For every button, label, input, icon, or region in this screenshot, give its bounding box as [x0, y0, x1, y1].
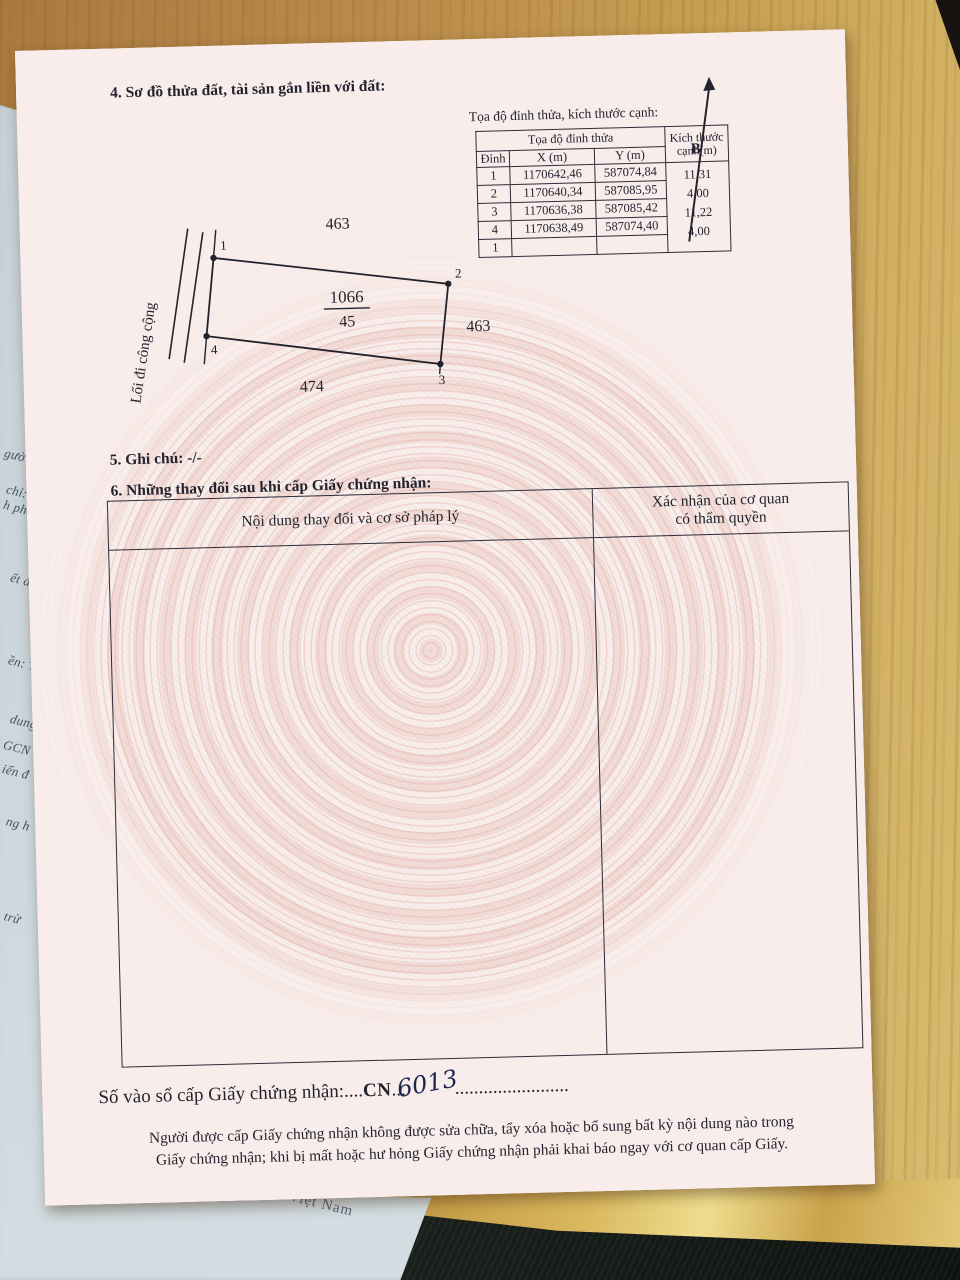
coord-col-dinh: Đỉnh	[476, 151, 509, 168]
leader-dots: ........................	[454, 1075, 569, 1099]
section5-heading: 5. Ghi chú: -/-	[110, 449, 203, 469]
confirm-col-header-line2: có thẩm quyền	[652, 508, 790, 529]
parcel-diagram: 1 2 3 4 463 463 474 1066 45 Lối đi công …	[97, 186, 535, 429]
edge-length: 11,22	[667, 205, 729, 220]
coord-col-y: Y (m)	[594, 147, 665, 165]
neighbor-parcel-right: 463	[466, 318, 490, 336]
edge-length: 4,00	[668, 224, 730, 239]
confirm-col-header: Xác nhận của cơ quan có thẩm quyền	[593, 482, 849, 538]
public-path-label: Lối đi công cộng	[128, 301, 159, 405]
neighbor-parcel-top: 463	[325, 215, 349, 233]
coord-header-kt: Kích thước cạnh(m)	[665, 125, 729, 163]
cell-y: 587085,95	[595, 181, 666, 201]
vertex-label-4: 4	[211, 342, 218, 357]
cell-y: 587074,84	[595, 163, 666, 183]
changes-table-left-column: Nội dung thay đổi và cơ sở pháp lý	[108, 489, 608, 1067]
vertex-label-3: 3	[439, 372, 446, 387]
table-edge-shadow-top-right	[925, 0, 960, 70]
edge-length: 11,31	[666, 167, 728, 182]
serial-code: CN	[363, 1080, 392, 1102]
parcel-number: 1066	[329, 287, 363, 307]
leader-dots: ....	[344, 1080, 364, 1101]
cell-y: 587085,42	[596, 199, 667, 219]
coord-table-caption: Tọa độ đỉnh thửa, kích thước cạnh:	[469, 104, 659, 125]
serial-number-line: Số vào sổ cấp Giấy chứng nhận:....CN...6…	[98, 1069, 569, 1109]
cell-y: 587074,40	[596, 217, 667, 237]
edge-length: 4,00	[667, 186, 729, 201]
serial-label: Số vào sổ cấp Giấy chứng nhận:	[98, 1081, 344, 1108]
section4-heading: 4. Sơ đồ thửa đất, tài sản gắn liền với …	[110, 77, 386, 102]
confirm-col-header-line1: Xác nhận của cơ quan	[652, 490, 790, 511]
edge-length-column: 11,31 4,00 11,22 4,00	[666, 161, 731, 253]
changes-table: Nội dung thay đổi và cơ sở pháp lý Xác n…	[107, 481, 864, 1067]
vertex-label-1: 1	[220, 238, 227, 253]
cell-y	[597, 235, 668, 255]
changes-col-header: Nội dung thay đổi và cơ sở pháp lý	[108, 489, 593, 551]
vertex-label-2: 2	[455, 265, 462, 280]
cell-dinh: 1	[477, 167, 510, 186]
cell-x: 1170642,46	[510, 164, 595, 184]
changes-table-right-column: Xác nhận của cơ quan có thẩm quyền	[593, 482, 863, 1053]
certificate-page: 4. Sơ đồ thửa đất, tài sản gắn liền với …	[15, 29, 875, 1205]
parcel-area: 45	[339, 313, 355, 330]
neighbor-parcel-bottom: 474	[300, 378, 324, 396]
handwritten-serial-number: 6013	[395, 1064, 460, 1103]
